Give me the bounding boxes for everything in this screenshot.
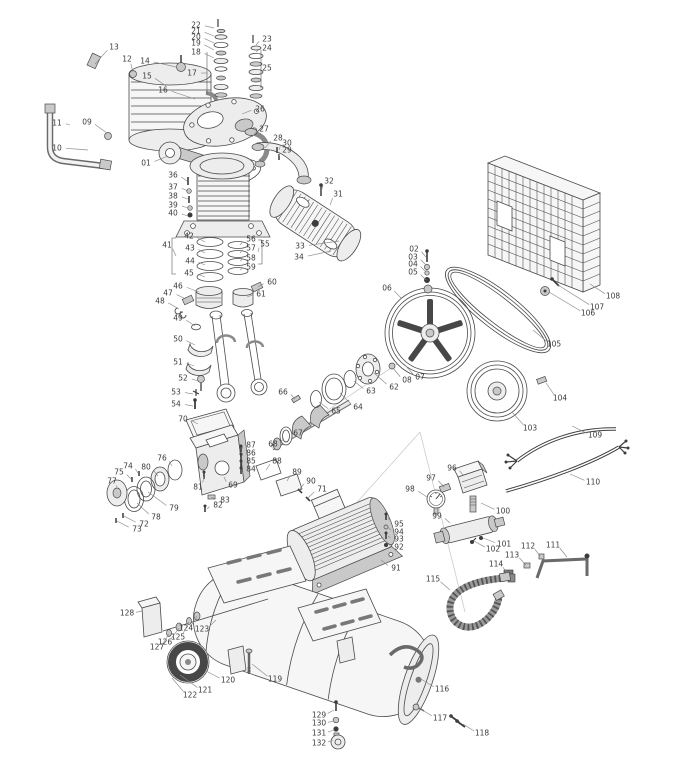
part-label-64: 64 (353, 403, 363, 412)
part-label-63: 63 (366, 387, 376, 396)
part-label-55: 55 (260, 240, 270, 249)
leader-line-05 (421, 275, 426, 280)
leader-line-11 (66, 124, 70, 125)
pressure-switch (454, 461, 487, 493)
part-label-85: 85 (246, 457, 256, 466)
part-label-123: 123 (195, 625, 210, 634)
leader-line-41 (173, 249, 176, 256)
leader-line-54 (185, 405, 193, 406)
nipple-100 (470, 496, 476, 512)
part-label-17: 17 (187, 69, 197, 78)
part-label-94: 94 (394, 528, 404, 537)
part-label-11: 11 (52, 119, 62, 128)
leader-line-21 (205, 32, 214, 36)
leader-line-113 (519, 558, 526, 565)
leader-line-73 (117, 521, 129, 527)
filter-inlet-stub (87, 53, 101, 69)
part-label-48: 48 (155, 297, 165, 306)
leader-line-98 (418, 491, 427, 497)
leader-line-03 (421, 260, 426, 265)
part-label-86: 86 (246, 449, 256, 458)
leader-line-48 (168, 303, 179, 309)
leader-line-52 (192, 379, 198, 381)
part-label-74: 74 (123, 462, 133, 471)
leader-line-18 (205, 54, 214, 58)
leader-line-55 (258, 248, 259, 252)
part-label-128: 128 (120, 609, 135, 618)
part-label-84: 84 (246, 465, 256, 474)
exploded-diagram: 0102030405060708091011121314151617181920… (0, 0, 686, 768)
part-label-73: 73 (132, 525, 142, 534)
part-label-114: 114 (489, 560, 504, 569)
leader-line-23 (256, 41, 259, 45)
part-label-111: 111 (546, 541, 561, 550)
part-label-46: 46 (173, 282, 183, 291)
leader-line-110 (570, 474, 584, 480)
leader-line-82 (207, 507, 210, 509)
part-label-40: 40 (168, 209, 178, 218)
part-label-01: 01 (141, 159, 151, 168)
part-label-83: 83 (220, 496, 230, 505)
part-label-61: 61 (256, 290, 266, 299)
part-label-112: 112 (521, 542, 536, 551)
wheel (167, 641, 209, 683)
part-label-98: 98 (405, 485, 415, 494)
part-label-117: 117 (433, 714, 448, 723)
part-label-100: 100 (496, 507, 511, 516)
part-label-76: 76 (157, 454, 167, 463)
leader-line-106 (549, 292, 580, 311)
part-label-75: 75 (114, 468, 124, 477)
piston-left (196, 287, 222, 309)
part-label-89: 89 (292, 468, 302, 477)
part-label-105: 105 (547, 340, 562, 349)
part-label-58: 58 (246, 254, 256, 263)
piston-rings-right (228, 240, 262, 275)
side-plate (276, 474, 310, 501)
leader-line-36 (181, 177, 187, 181)
flywheel (385, 288, 475, 378)
part-label-23: 23 (262, 35, 272, 44)
part-label-99: 99 (432, 512, 442, 521)
part-label-51: 51 (173, 358, 183, 367)
head-bolt-column (187, 177, 193, 218)
part-label-12: 12 (122, 55, 132, 64)
leader-line-50 (186, 341, 195, 345)
drain-cock-stack (331, 700, 345, 749)
cooler-muffler (265, 181, 366, 265)
part-label-36: 36 (168, 171, 178, 180)
pressure-gauge (427, 490, 445, 514)
part-label-27: 27 (259, 125, 269, 134)
leader-line-45 (198, 274, 205, 277)
part-label-88: 88 (272, 457, 282, 466)
part-label-08: 08 (402, 376, 412, 385)
part-label-104: 104 (553, 394, 568, 403)
leader-line-58 (240, 259, 242, 261)
part-label-30: 30 (282, 139, 292, 148)
pin-retainer (192, 324, 201, 330)
part-label-108: 108 (606, 292, 621, 301)
part-label-43: 43 (185, 244, 195, 253)
leader-line-06 (394, 291, 402, 299)
leader-line-103 (512, 412, 523, 425)
part-label-41: 41 (162, 241, 172, 250)
leader-line-111 (560, 548, 567, 557)
part-label-54: 54 (171, 400, 181, 409)
connecting-rods (210, 310, 267, 403)
part-label-18: 18 (191, 48, 201, 57)
leader-line-129 (328, 710, 334, 713)
part-label-31: 31 (333, 190, 343, 199)
leader-line-53 (185, 393, 193, 394)
part-label-67: 67 (293, 429, 303, 438)
leader-line-39 (182, 206, 188, 208)
leader-line-02 (421, 252, 426, 257)
part-label-97: 97 (426, 474, 436, 483)
support-foot (138, 597, 162, 637)
leader-line-71 (308, 492, 314, 498)
part-label-22: 22 (191, 21, 201, 30)
part-label-79: 79 (169, 504, 179, 513)
part-label-120: 120 (221, 676, 236, 685)
part-label-107: 107 (590, 303, 605, 312)
part-label-109: 109 (588, 431, 603, 440)
part-label-15: 15 (142, 72, 152, 81)
washer-08 (389, 363, 395, 369)
part-label-125: 125 (171, 633, 186, 642)
part-label-33: 33 (295, 242, 305, 251)
part-label-38: 38 (168, 192, 178, 201)
valve-stack-right (249, 35, 263, 98)
part-label-32: 32 (324, 177, 334, 186)
leader-line-08 (393, 368, 400, 377)
part-label-49: 49 (173, 314, 183, 323)
part-label-50: 50 (173, 335, 183, 344)
leader-line-102 (474, 541, 485, 547)
part-label-92: 92 (394, 543, 404, 552)
leader-line-100 (481, 503, 495, 509)
part-label-78: 78 (151, 513, 161, 522)
part-label-103: 103 (523, 424, 538, 433)
power-cable-lower (506, 440, 630, 492)
motor-pulley (467, 361, 527, 421)
leader-line-47 (177, 295, 186, 299)
part-label-07: 07 (415, 373, 425, 382)
part-label-115: 115 (426, 575, 441, 584)
part-label-121: 121 (198, 686, 213, 695)
leader-line-120 (206, 671, 220, 678)
belt-guard (488, 156, 600, 292)
leader-line-40 (182, 214, 188, 216)
part-label-91: 91 (391, 564, 401, 573)
intake-elbow-pipe (45, 104, 112, 170)
leader-line-99 (445, 518, 450, 523)
part-label-24: 24 (262, 44, 272, 53)
outlet-manifold (433, 513, 506, 546)
leader-line-75 (127, 475, 131, 479)
part-label-26: 26 (255, 105, 265, 114)
part-label-81: 81 (193, 483, 203, 492)
piston-right (233, 289, 253, 308)
leader-line-88 (266, 464, 270, 470)
part-label-132: 132 (312, 739, 327, 748)
leader-line-101 (483, 538, 495, 543)
part-label-77: 77 (107, 477, 117, 486)
part-label-62: 62 (389, 383, 399, 392)
part-label-127: 127 (150, 643, 165, 652)
part-label-119: 119 (268, 675, 283, 684)
part-label-65: 65 (331, 407, 341, 416)
leader-line-117 (419, 708, 432, 716)
piston-rings-left (172, 238, 223, 282)
part-label-96: 96 (447, 464, 457, 473)
part-label-59: 59 (246, 263, 256, 272)
part-label-16: 16 (158, 86, 168, 95)
part-label-87: 87 (246, 441, 256, 450)
leader-line-130 (328, 721, 334, 722)
crankshaft-group (272, 354, 404, 450)
part-label-60: 60 (267, 278, 277, 287)
leader-line-112 (535, 549, 540, 556)
leader-line-38 (182, 197, 188, 199)
leader-line-74 (135, 469, 138, 473)
part-label-116: 116 (435, 685, 450, 694)
part-label-71: 71 (317, 485, 327, 494)
leader-line-49 (186, 320, 195, 326)
fitting-112 (539, 554, 544, 559)
leader-line-10 (66, 148, 88, 150)
diagram-page: 0102030405060708091011121314151617181920… (0, 0, 686, 768)
part-label-53: 53 (171, 388, 181, 397)
part-label-113: 113 (505, 551, 520, 560)
part-label-68: 68 (268, 440, 278, 449)
part-label-44: 44 (185, 257, 195, 266)
tank-screws-118 (449, 714, 465, 727)
part-label-34: 34 (294, 253, 304, 262)
filter-cap (177, 63, 186, 72)
part-label-56: 56 (246, 235, 256, 244)
part-label-52: 52 (178, 374, 188, 383)
part-label-70: 70 (178, 415, 188, 424)
part-label-09: 09 (82, 118, 92, 127)
part-label-37: 37 (168, 183, 178, 192)
breather-parts (193, 376, 205, 410)
leader-line-09 (95, 124, 107, 133)
part-label-102: 102 (486, 545, 501, 554)
part-label-45: 45 (184, 269, 194, 278)
part-label-118: 118 (475, 729, 490, 738)
leader-line-31 (330, 198, 333, 205)
leader-line-128 (136, 611, 142, 612)
part-label-57: 57 (246, 244, 256, 253)
leader-line-19 (204, 45, 214, 50)
part-label-10: 10 (52, 144, 62, 153)
part-label-90: 90 (306, 477, 316, 486)
wrist-pin-left (182, 295, 194, 305)
part-label-80: 80 (141, 463, 151, 472)
leader-line-22 (205, 26, 214, 28)
leader-line-72 (124, 516, 136, 522)
rod-caps (186, 344, 213, 375)
leader-line-59 (240, 268, 242, 270)
part-label-14: 14 (140, 57, 150, 66)
part-label-131: 131 (312, 729, 327, 738)
part-label-05: 05 (408, 268, 418, 277)
part-label-06: 06 (382, 284, 392, 293)
part-label-95: 95 (394, 520, 404, 529)
flex-hose (450, 572, 511, 627)
part-label-13: 13 (109, 43, 119, 52)
part-label-130: 130 (312, 719, 327, 728)
part-label-110: 110 (586, 478, 601, 487)
leader-line-115 (441, 582, 450, 590)
part-label-25: 25 (262, 64, 272, 73)
part-label-42: 42 (184, 232, 194, 241)
leader-line-131 (328, 730, 334, 732)
leader-line-20 (205, 39, 214, 43)
pulley-key (537, 376, 547, 384)
part-label-122: 122 (183, 691, 198, 700)
part-label-66: 66 (278, 388, 288, 397)
part-label-69: 69 (228, 481, 238, 490)
